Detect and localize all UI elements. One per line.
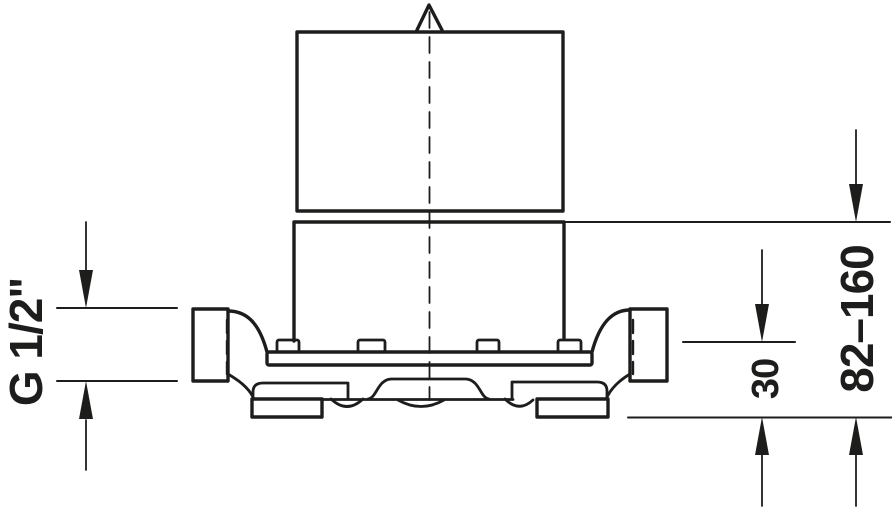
valve-installation-drawing: G 1/2" 82–160 30 bbox=[0, 0, 892, 509]
right-elbow-inner bbox=[607, 374, 630, 397]
arrow-up-icon bbox=[755, 417, 769, 455]
valve-fixture bbox=[193, 5, 667, 417]
right-elbow-outer bbox=[592, 310, 630, 352]
dimension-thread: G 1/2" bbox=[0, 222, 177, 470]
dimension-depth: 30 bbox=[683, 250, 795, 506]
arrow-up-icon bbox=[79, 381, 93, 419]
thread-size-label: G 1/2" bbox=[0, 278, 52, 406]
left-elbow-inner bbox=[228, 374, 253, 397]
left-foot-block bbox=[252, 399, 322, 417]
mounting-tab bbox=[558, 340, 581, 352]
left-body-lip bbox=[253, 383, 348, 399]
dimension-range: 82–160 bbox=[564, 130, 892, 506]
mounting-tab bbox=[277, 340, 299, 352]
mounting-tab bbox=[477, 340, 499, 352]
arrow-down-icon bbox=[755, 304, 769, 342]
technical-drawing-canvas: G 1/2" 82–160 30 bbox=[0, 0, 892, 509]
arrow-down-icon bbox=[849, 184, 863, 222]
left-elbow-outer bbox=[228, 311, 267, 352]
mounting-tab bbox=[358, 340, 385, 352]
depth-label: 30 bbox=[745, 359, 787, 399]
arrow-up-icon bbox=[849, 417, 863, 455]
underside-boss bbox=[398, 400, 444, 407]
arrow-down-icon bbox=[79, 270, 93, 308]
left-connection-port bbox=[193, 309, 228, 381]
center-dome bbox=[368, 379, 489, 399]
right-foot-block bbox=[537, 399, 608, 417]
right-connection-port bbox=[630, 309, 667, 381]
range-label: 82–160 bbox=[831, 245, 883, 393]
right-body-lip bbox=[512, 382, 607, 398]
